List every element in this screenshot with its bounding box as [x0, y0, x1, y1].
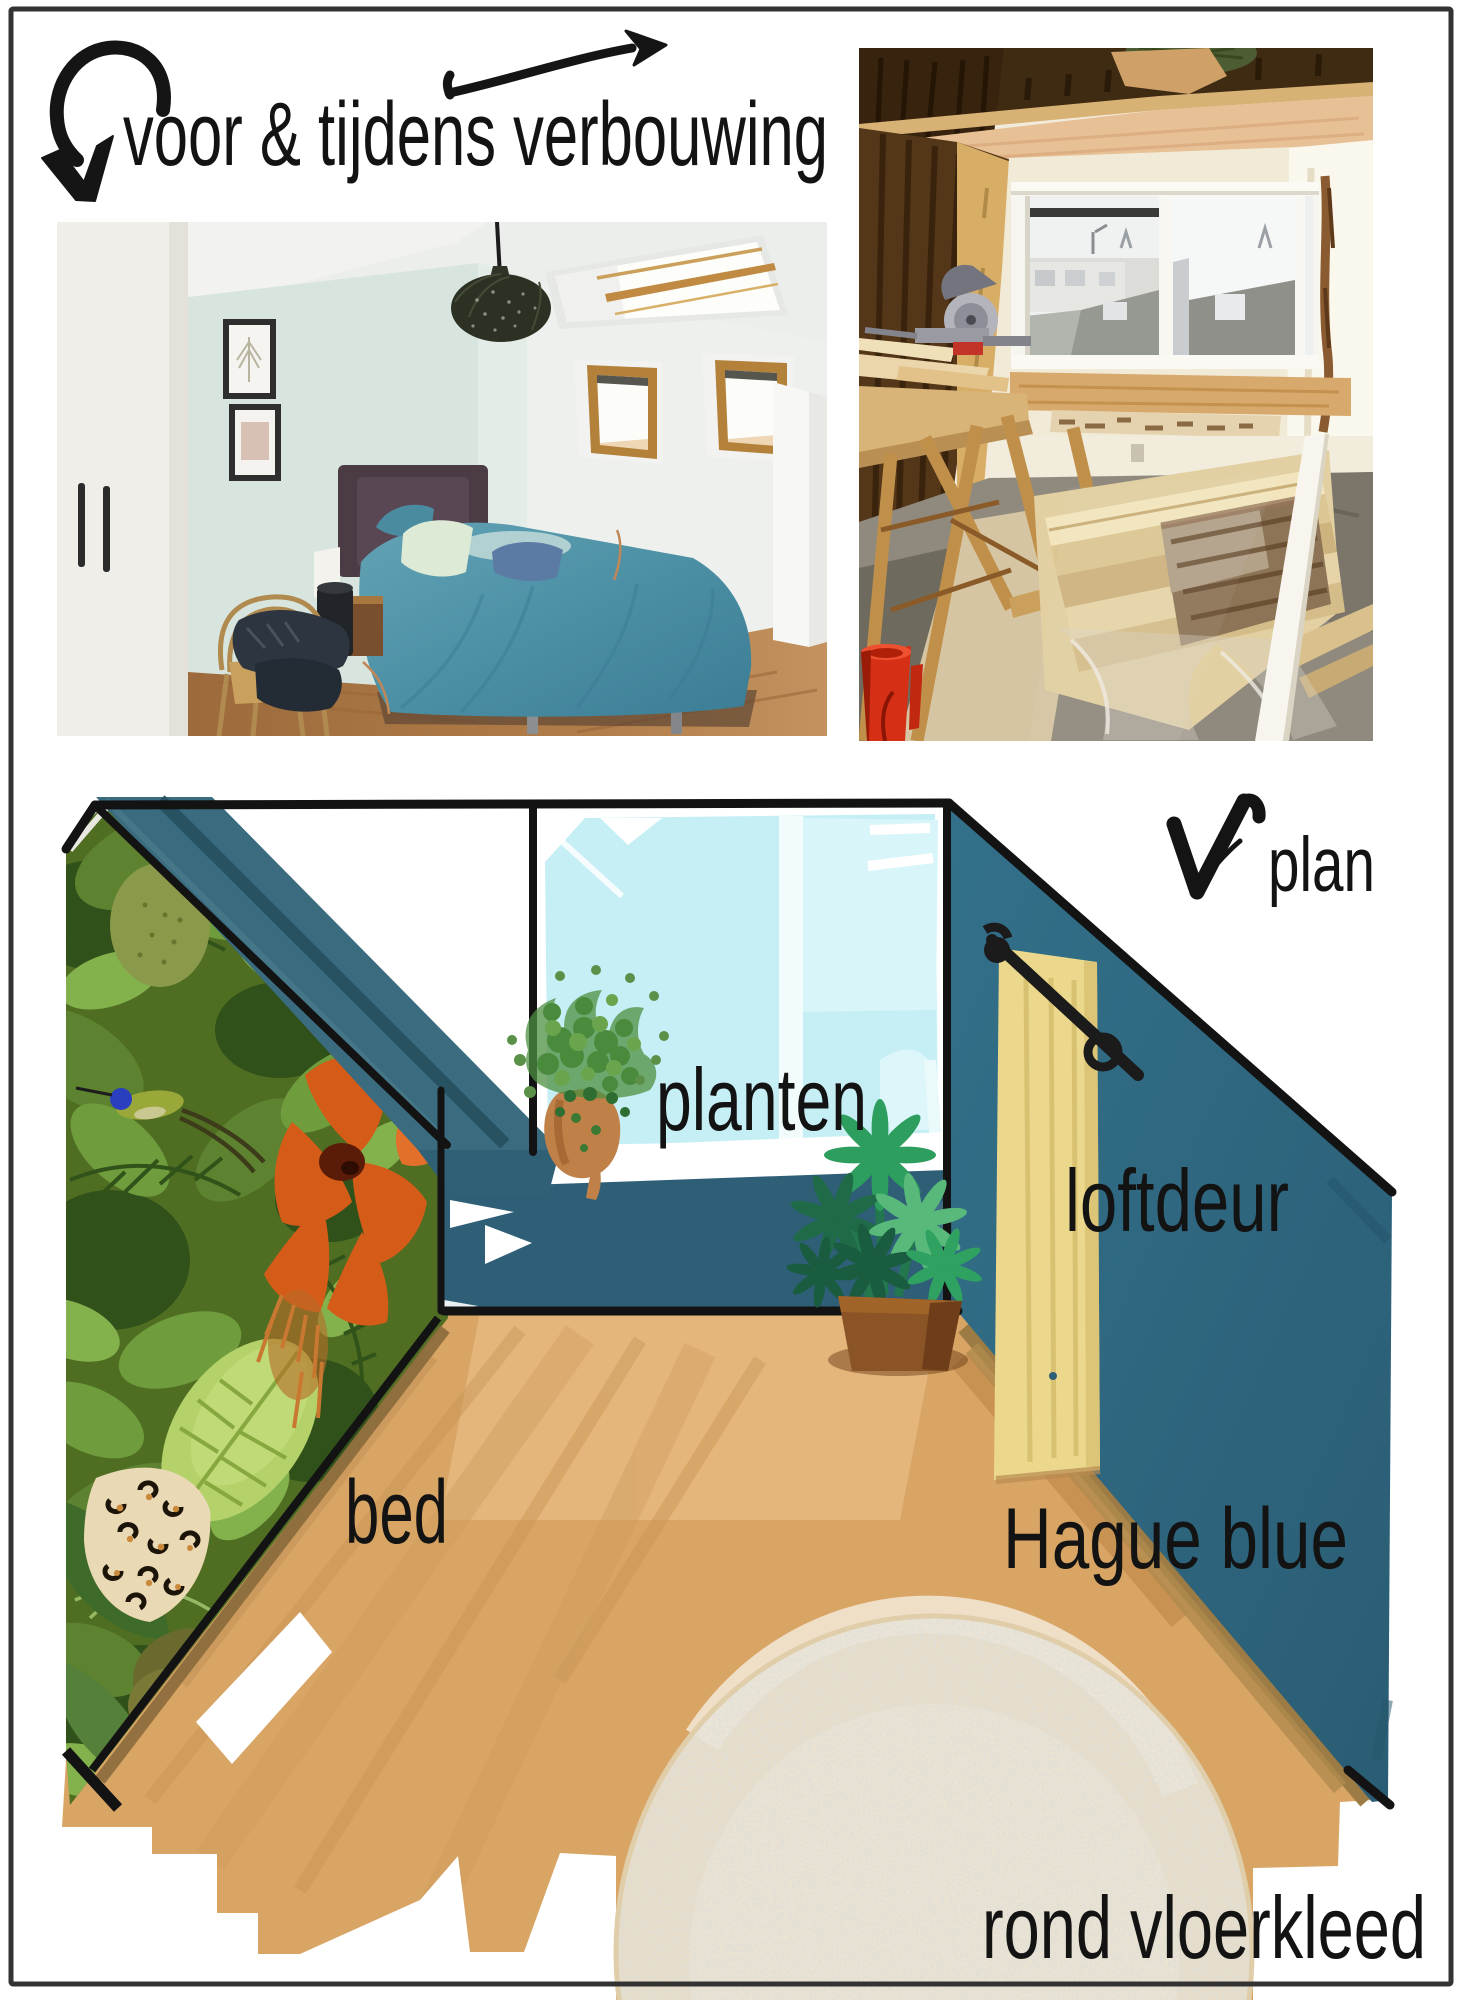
- svg-text:planten: planten: [656, 1050, 867, 1149]
- svg-text:Hague blue: Hague blue: [1003, 1491, 1348, 1587]
- svg-text:voor & tijdens verbouwing: voor & tijdens verbouwing: [123, 85, 828, 185]
- svg-text:bed: bed: [345, 1463, 448, 1563]
- svg-text:rond vloerkleed: rond vloerkleed: [982, 1878, 1426, 1977]
- svg-text:loftdeur: loftdeur: [1065, 1151, 1289, 1250]
- svg-text:plan: plan: [1268, 822, 1375, 908]
